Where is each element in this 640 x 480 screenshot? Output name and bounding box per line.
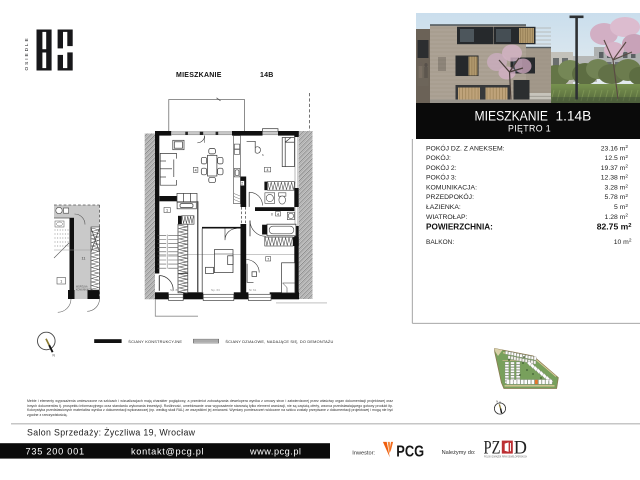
svg-text:kontakt@pcg.pl: kontakt@pcg.pl bbox=[131, 447, 204, 457]
svg-text:2: 2 bbox=[241, 182, 243, 186]
svg-text:7: 7 bbox=[267, 257, 269, 261]
svg-text:Np. 80: Np. 80 bbox=[170, 288, 179, 292]
svg-text:ŚCIANY DZIAŁOWE, NADAJĄCE SIĘ,: ŚCIANY DZIAŁOWE, NADAJĄCE SIĘ, DO DEMONT… bbox=[225, 339, 333, 344]
svg-text:19.37 m2: 19.37 m2 bbox=[601, 164, 629, 172]
svg-text:82.75 m2: 82.75 m2 bbox=[597, 222, 632, 232]
svg-text:POKÓJ DZ. Z ANEKSEM:: POKÓJ DZ. Z ANEKSEM: bbox=[426, 143, 505, 152]
svg-text:www.pcg.pl: www.pcg.pl bbox=[249, 447, 301, 457]
svg-text:4: 4 bbox=[267, 168, 269, 172]
svg-text:KOMUNIKACJA: KOMUNIKACJA bbox=[76, 288, 93, 291]
svg-text:BALKON:: BALKON: bbox=[426, 239, 454, 246]
svg-text:10 m2: 10 m2 bbox=[614, 238, 632, 246]
svg-text:Salon Sprzedaży: Życzliwa 19,: Salon Sprzedaży: Życzliwa 19, Wrocław bbox=[27, 428, 196, 438]
svg-text:POKÓJ:: POKÓJ: bbox=[426, 153, 451, 162]
svg-text:ŚCIANY KONSTRUKCYJNE: ŚCIANY KONSTRUKCYJNE bbox=[128, 339, 182, 344]
svg-text:12.38 m2: 12.38 m2 bbox=[601, 174, 629, 182]
svg-text:s: s bbox=[262, 153, 264, 157]
svg-text:POKÓJ 2:: POKÓJ 2: bbox=[426, 163, 457, 172]
svg-text:PCG: PCG bbox=[396, 443, 424, 460]
svg-text:5 m2: 5 m2 bbox=[614, 203, 628, 211]
svg-text:Należymy do:: Należymy do: bbox=[442, 450, 476, 456]
svg-text:12.5 m2: 12.5 m2 bbox=[605, 154, 629, 162]
svg-text:8: 8 bbox=[271, 212, 273, 216]
svg-text:N: N bbox=[496, 400, 498, 404]
svg-text:Nr 61: Nr 61 bbox=[249, 288, 257, 292]
svg-text:PIĘTRO 1: PIĘTRO 1 bbox=[508, 123, 551, 133]
svg-text:1: 1 bbox=[60, 280, 62, 284]
svg-text:ŁAZIENKA:: ŁAZIENKA: bbox=[426, 204, 461, 211]
svg-text:Inwestor:: Inwestor: bbox=[352, 450, 375, 456]
svg-text:MIESZKANIE: MIESZKANIE bbox=[176, 72, 222, 79]
svg-text:PRZEDPOKÓJ:: PRZEDPOKÓJ: bbox=[426, 192, 474, 201]
svg-text:POWIERZCHNIA:: POWIERZCHNIA: bbox=[426, 223, 493, 232]
svg-text:735 200 001: 735 200 001 bbox=[26, 447, 85, 457]
svg-text:WSPÓLNA: WSPÓLNA bbox=[76, 286, 88, 289]
svg-text:1.28 m2: 1.28 m2 bbox=[605, 213, 629, 221]
svg-text:N: N bbox=[53, 354, 56, 358]
svg-text:23.16 m2: 23.16 m2 bbox=[601, 144, 629, 152]
svg-text:1: 1 bbox=[166, 209, 168, 213]
svg-text:4: 4 bbox=[195, 168, 197, 172]
svg-text:MIESZKANIE: MIESZKANIE bbox=[475, 108, 549, 124]
svg-text:5.78 m2: 5.78 m2 bbox=[605, 193, 629, 201]
svg-text:4: 4 bbox=[277, 212, 279, 216]
svg-text:KOMUNIKACJA:: KOMUNIKACJA: bbox=[426, 185, 477, 192]
svg-text:1.14B: 1.14B bbox=[556, 108, 592, 124]
svg-text:Np. 63: Np. 63 bbox=[211, 288, 220, 292]
svg-text:WIATROŁAP:: WIATROŁAP: bbox=[426, 214, 468, 221]
svg-text:POLSKI ZWIĄZEK FIRM DEWELOPERS: POLSKI ZWIĄZEK FIRM DEWELOPERSKICH bbox=[484, 455, 527, 459]
svg-text:OSIEDLE: OSIEDLE bbox=[24, 36, 30, 70]
svg-text:3.28 m2: 3.28 m2 bbox=[605, 183, 629, 191]
svg-text:POKÓJ 3:: POKÓJ 3: bbox=[426, 173, 457, 182]
svg-text:14B: 14B bbox=[260, 72, 274, 79]
svg-text:11: 11 bbox=[82, 257, 86, 261]
